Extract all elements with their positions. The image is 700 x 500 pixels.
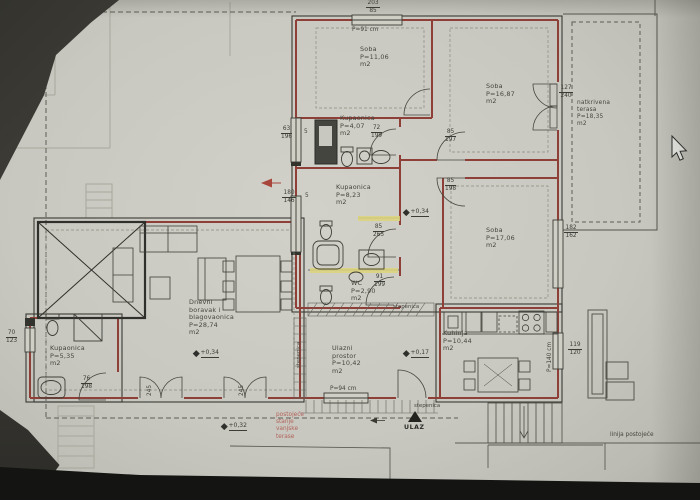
red-arrow-marker <box>261 179 281 188</box>
shower-dark-kup1 <box>315 120 337 164</box>
room-label-kuhinja: Kuhinja P=10,44 m2 <box>443 330 472 353</box>
room-label-kupaonica-3: Kupaonica P=5,35 m2 <box>50 345 85 368</box>
parapet-top: P=91 cm <box>352 27 378 33</box>
red-note: postojeće stanje vanjske terase <box>276 412 304 441</box>
existing-line-label: linija postojeće <box>610 432 654 438</box>
dim-french-door-1: 245 <box>147 385 153 396</box>
wall-thickness-a: 5 <box>304 129 308 135</box>
room-label-wc: WC P=2,90 m2 <box>351 280 376 303</box>
level-marker-icon <box>403 350 409 356</box>
dim-door-terasa: 127 240 <box>559 85 573 99</box>
entrance-label: ULAZ <box>404 424 425 431</box>
stairs-exterior <box>488 403 562 443</box>
crossed-square <box>38 222 145 318</box>
level-living: +0,34 <box>194 349 219 358</box>
room-label-soba-3: Soba P=17,06 m2 <box>486 227 515 250</box>
wall-thickness-b: 5 <box>305 193 309 199</box>
level-outside: +0,32 <box>222 422 247 431</box>
kitchen-table <box>464 358 530 392</box>
room-label-terasa: natkrivena terasa P=18,35 m2 <box>577 100 610 128</box>
level-hall: +0,34 <box>404 208 429 217</box>
stair-label-side: stepenica <box>296 342 302 368</box>
room-label-kupaonica-2: Kupaonica P=8,23 m2 <box>336 184 371 207</box>
bottom-construction-lines <box>230 443 700 492</box>
dim-door-soba-3: 85 198 <box>445 178 456 192</box>
floorplan-photo: Soba P=11,06 m2 Soba P=16,87 m2 natkrive… <box>0 0 700 500</box>
dim-door-soba-2: 85 197 <box>445 129 456 143</box>
stair-label-hall: stepenica <box>393 304 419 310</box>
room-label-soba-2: Soba P=16,87 m2 <box>486 83 515 106</box>
dim-window-left-1: 63 196 <box>281 126 292 140</box>
highlight-yellow <box>310 216 400 273</box>
mouse-cursor-icon <box>672 136 686 160</box>
dim-door-kupaonica-2: 85 265 <box>373 224 384 238</box>
floorplan-drawing <box>0 0 700 500</box>
dim-door-wc: 91 199 <box>374 274 385 288</box>
exterior-landing <box>588 310 634 400</box>
room-label-soba-1: Soba P=11,06 m2 <box>360 46 389 69</box>
dim-window-soba-3: 182 162 <box>564 225 578 239</box>
dim-door-kupaonica-1: 72 199 <box>371 125 382 139</box>
dim-door-kupaonica-3: 76 198 <box>81 376 92 390</box>
dim-french-door-2: 245 <box>239 385 245 396</box>
room-label-dnevni: Dnevni boravak i blagovaonica P=28,74 m2 <box>189 299 234 337</box>
wall-piers-black <box>25 158 301 326</box>
level-marker-icon <box>403 209 409 215</box>
parapet-entry: P=94 cm <box>330 386 356 392</box>
dim-top-window: 203 85 <box>366 0 380 14</box>
stair-label-porch: stepenica <box>414 403 440 409</box>
level-marker-icon <box>193 350 199 356</box>
dim-window-kuhinja: 119 120 <box>568 342 582 356</box>
parapet-kuhinja: P=140 cm <box>547 342 553 372</box>
level-entry: +0,17 <box>404 349 429 358</box>
room-label-kupaonica-1: Kupaonica P=4,07 m2 <box>340 115 375 138</box>
level-marker-icon <box>221 423 227 429</box>
dim-window-kupaonica-3: 70 123 <box>6 330 17 344</box>
room-label-ulazni: Ulazni prostor P=10,42 m2 <box>332 345 361 375</box>
dim-window-left-2: 180 146 <box>282 190 296 204</box>
